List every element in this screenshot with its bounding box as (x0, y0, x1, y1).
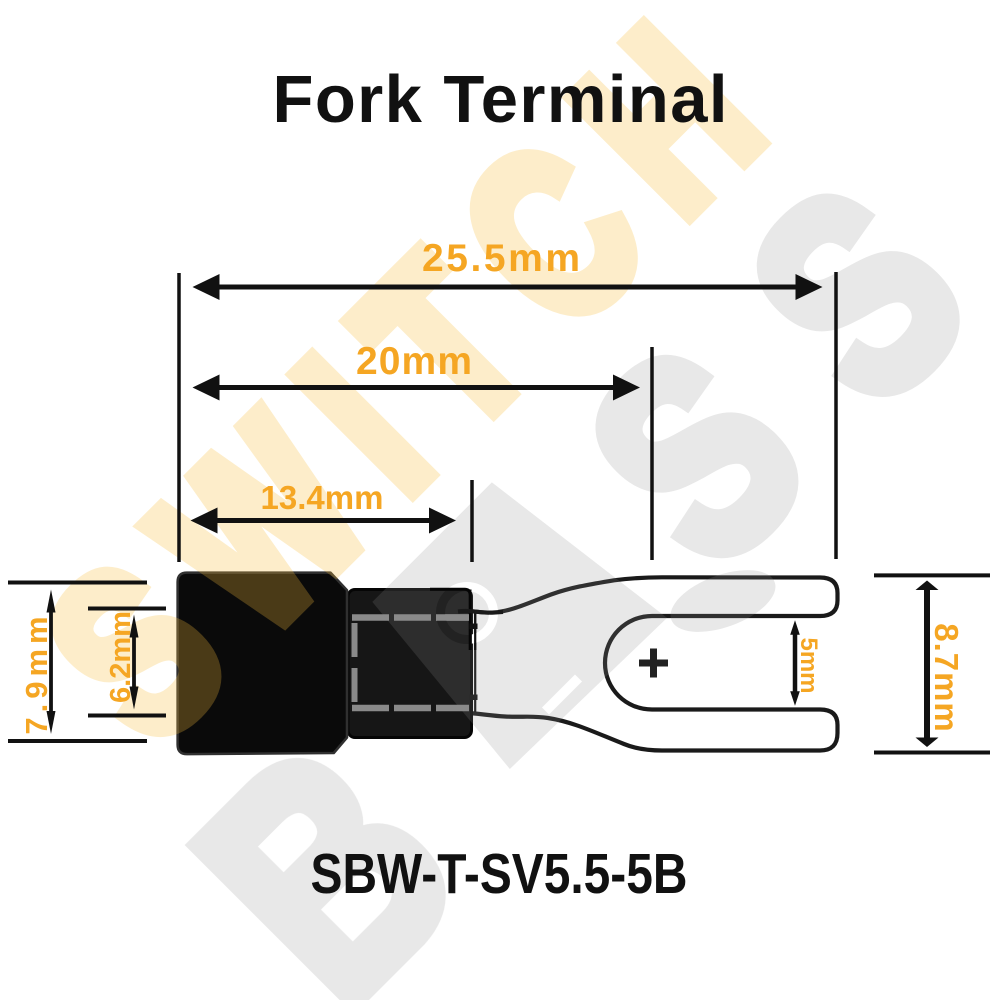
svg-text:SBW-T-SV5.5-5B: SBW-T-SV5.5-5B (311, 842, 688, 906)
svg-text:6.2mm: 6.2mm (105, 611, 137, 703)
svg-text:25.5mm: 25.5mm (422, 237, 580, 280)
svg-text:13.4mm: 13.4mm (261, 479, 384, 516)
svg-text:5mm: 5mm (795, 637, 822, 693)
svg-text:20mm: 20mm (356, 340, 472, 383)
svg-text:8.7mm: 8.7mm (928, 623, 965, 733)
svg-text:7.9mm: 7.9mm (19, 611, 54, 734)
svg-text:Fork Terminal: Fork Terminal (273, 62, 728, 137)
